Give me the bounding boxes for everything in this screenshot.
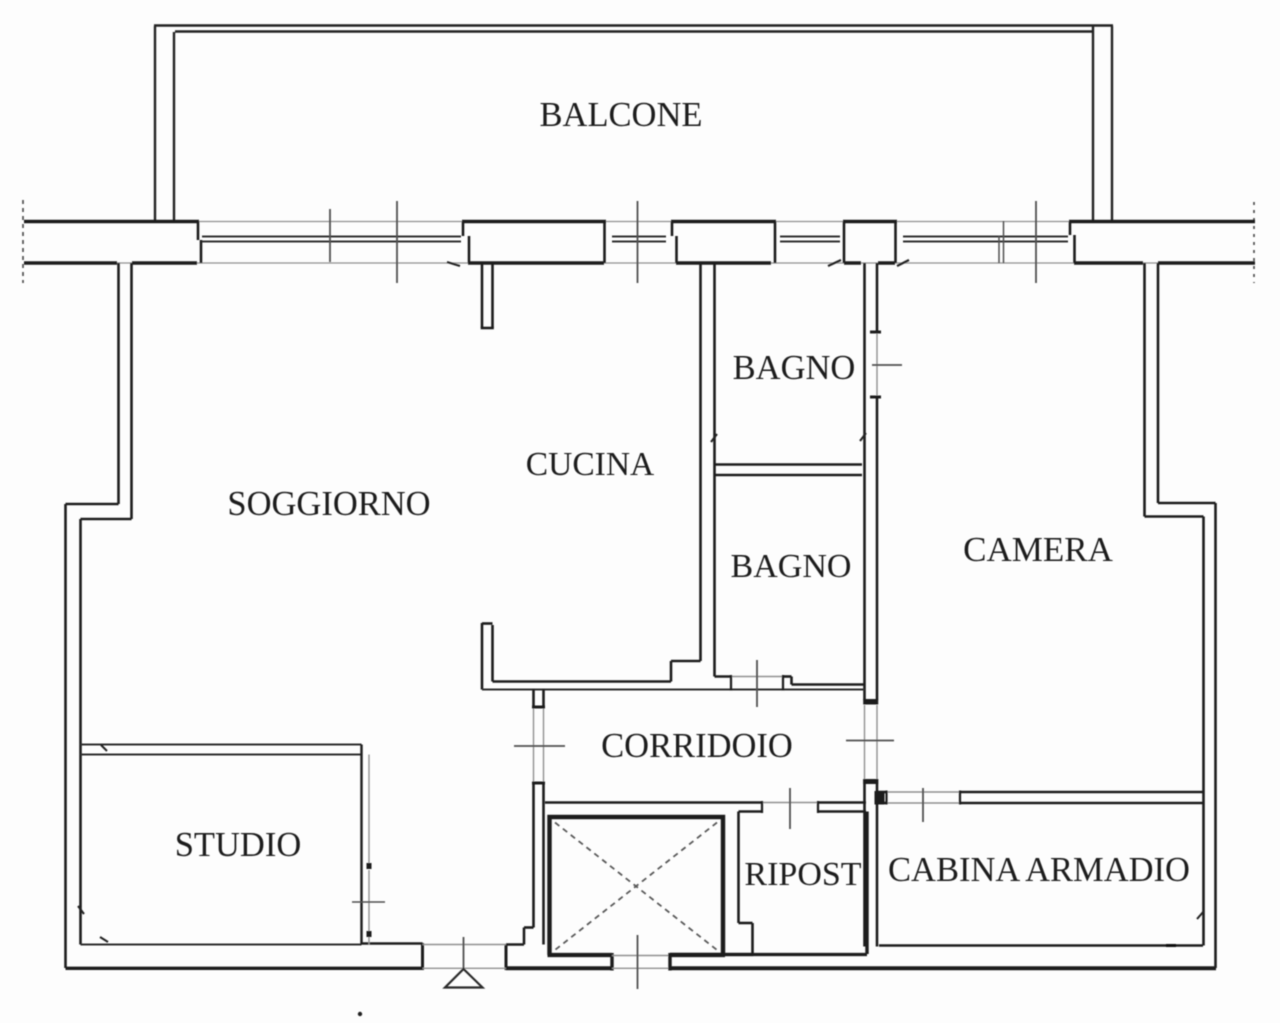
svg-text:CORRIDOIO: CORRIDOIO — [601, 727, 793, 765]
svg-text:BAGNO: BAGNO — [733, 349, 856, 387]
svg-text:BALCONE: BALCONE — [540, 96, 703, 134]
svg-text:CABINA ARMADIO: CABINA ARMADIO — [888, 851, 1190, 889]
svg-text:RIPOST: RIPOST — [744, 856, 861, 893]
svg-text:STUDIO: STUDIO — [175, 826, 302, 864]
svg-text:CUCINA: CUCINA — [526, 446, 654, 483]
svg-text:BAGNO: BAGNO — [731, 548, 852, 585]
svg-text:SOGGIORNO: SOGGIORNO — [227, 485, 430, 523]
svg-text:CAMERA: CAMERA — [963, 530, 1113, 569]
